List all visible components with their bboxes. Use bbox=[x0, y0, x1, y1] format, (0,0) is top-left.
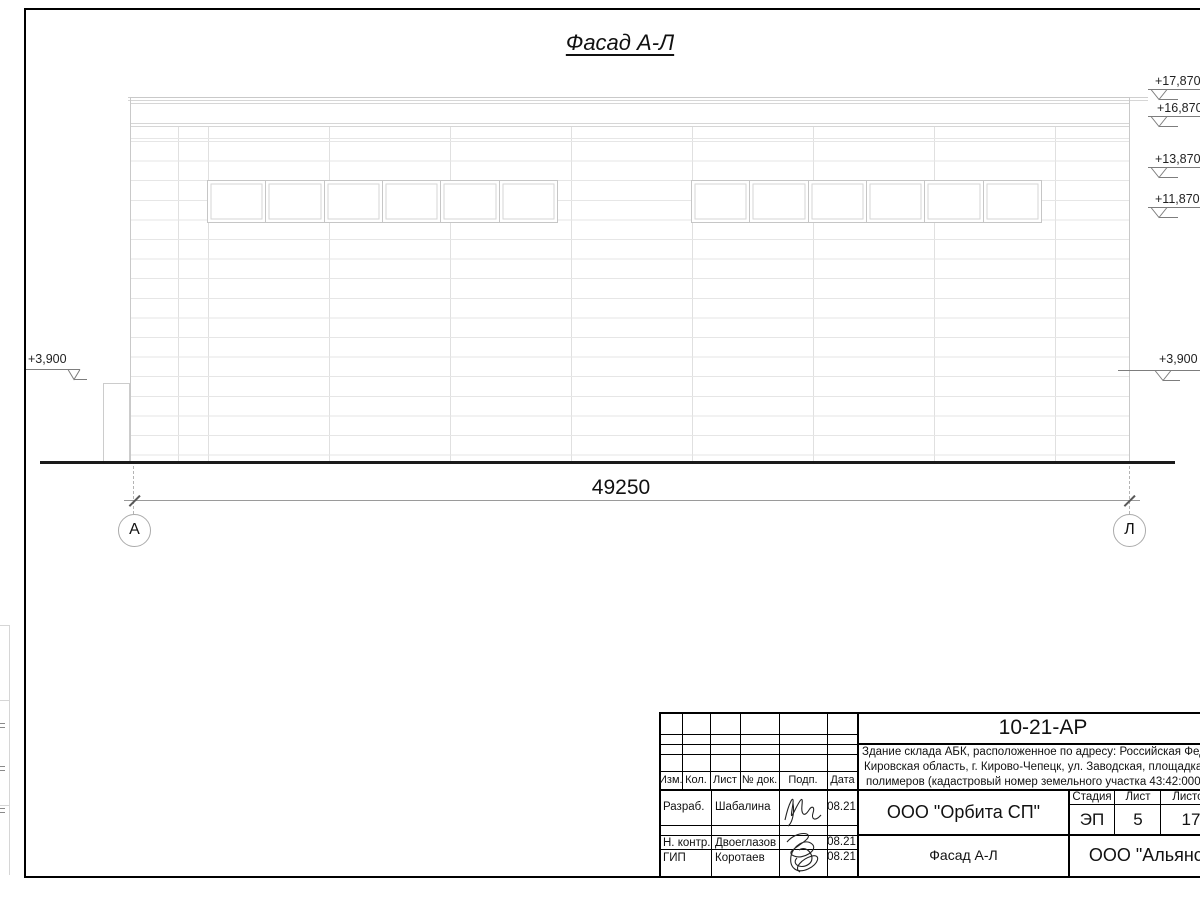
edge-table-border bbox=[9, 625, 10, 875]
elevation-value: +3,900 bbox=[28, 352, 67, 366]
elevation-arrow-icon bbox=[1148, 89, 1200, 101]
sheet-frame-left bbox=[24, 8, 26, 876]
window bbox=[984, 181, 1041, 222]
axis-bubble-l: Л bbox=[1113, 514, 1146, 547]
stamp-line bbox=[659, 771, 858, 772]
sig-name: Шабалина bbox=[715, 801, 771, 813]
project-description-line: полимеров (кадастровый номер земельного … bbox=[866, 776, 1200, 788]
col-header-data: Дата bbox=[827, 774, 858, 786]
drawing-sheet: { "sheet": { "title": "Фасад А-Л", "dime… bbox=[0, 0, 1200, 900]
stamp-line bbox=[659, 734, 858, 735]
elevation-value: +17,870 bbox=[1155, 74, 1200, 88]
sig-name: Двоеглазов bbox=[715, 837, 776, 849]
elevation-arrow-icon bbox=[1148, 167, 1200, 179]
sig-role: Разраб. bbox=[663, 801, 704, 813]
stamp-line bbox=[659, 849, 858, 850]
sheet-label: Лист bbox=[1115, 791, 1161, 803]
signature-scribble bbox=[781, 792, 826, 828]
building-outline bbox=[130, 97, 1130, 463]
stamp-line bbox=[711, 790, 712, 876]
stamp-line bbox=[858, 743, 1200, 745]
window bbox=[500, 181, 557, 222]
client-org: ООО "Орбита СП" bbox=[858, 790, 1069, 835]
axis-extension-line-a bbox=[133, 466, 134, 514]
elevation-value: +11,870 bbox=[1155, 192, 1200, 206]
col-header-podp: Подп. bbox=[779, 774, 827, 786]
edge-table-text-fragment bbox=[0, 808, 5, 813]
facade-view-title: Фасад А-Л bbox=[490, 30, 750, 56]
elevation-mark-windows-bottom: +11,870 bbox=[1155, 192, 1200, 206]
signature-scribble bbox=[779, 830, 827, 876]
edge-table-text-fragment bbox=[0, 723, 5, 728]
project-description-line: Кировская область, г. Кирово-Чепецк, ул.… bbox=[864, 761, 1200, 773]
sheets-total-label: Листов bbox=[1161, 791, 1200, 803]
axis-bubble-a: А bbox=[118, 514, 151, 547]
elevation-value: +16,870 bbox=[1157, 101, 1200, 115]
elevation-value: +13,870 bbox=[1155, 152, 1200, 166]
window bbox=[266, 181, 324, 222]
stage-value: ЭП bbox=[1069, 805, 1115, 835]
window bbox=[208, 181, 266, 222]
window bbox=[383, 181, 441, 222]
window-band-left bbox=[207, 180, 558, 223]
window bbox=[692, 181, 750, 222]
elevation-arrow-icon bbox=[26, 369, 88, 381]
window bbox=[750, 181, 808, 222]
col-header-list: Лист bbox=[710, 774, 740, 786]
stage-label: Стадия bbox=[1069, 791, 1115, 803]
sig-date: 08.21 bbox=[826, 851, 857, 863]
elevation-mark-parapet-bottom: +16,870 bbox=[1157, 101, 1200, 115]
dimension-line bbox=[124, 500, 1140, 501]
axis-extension-line-l bbox=[1129, 466, 1130, 514]
stamp-line bbox=[659, 754, 858, 755]
window bbox=[441, 181, 499, 222]
project-description-line: Здание склада АБК, расположенное по адре… bbox=[862, 746, 1200, 758]
elevation-arrow-icon bbox=[1118, 370, 1200, 382]
window bbox=[925, 181, 983, 222]
sheet-frame-top bbox=[24, 8, 1200, 10]
col-header-izm: Изм. bbox=[659, 774, 682, 786]
view-name: Фасад А-Л bbox=[858, 835, 1069, 876]
doc-number: 10-21-АР bbox=[868, 712, 1200, 743]
elevation-mark-annex-right: +3,900 bbox=[1159, 352, 1198, 366]
stamp-line bbox=[659, 825, 858, 826]
annex-outline bbox=[103, 383, 130, 462]
elevation-arrow-icon bbox=[1148, 207, 1200, 219]
sig-name: Коротаев bbox=[715, 852, 765, 864]
elevation-mark-parapet-top: +17,870 bbox=[1155, 74, 1200, 88]
window bbox=[867, 181, 925, 222]
col-header-doc-no: № док. bbox=[740, 774, 779, 786]
sig-date: 08.21 bbox=[826, 836, 857, 848]
elevation-mark-windows-top: +13,870 bbox=[1155, 152, 1200, 166]
dimension-value: 49250 bbox=[486, 476, 756, 500]
sheet-frame-bottom bbox=[24, 876, 1200, 878]
sig-role: Н. контр. bbox=[663, 837, 710, 849]
sheets-total-value: 17 bbox=[1161, 805, 1200, 835]
design-org: ООО "Альянс" bbox=[1069, 835, 1200, 876]
window bbox=[809, 181, 867, 222]
stamp-line bbox=[659, 712, 661, 878]
sig-role: ГИП bbox=[663, 852, 686, 864]
elevation-arrow-icon bbox=[1148, 116, 1200, 128]
sig-date: 08.21 bbox=[826, 801, 857, 813]
sheet-value: 5 bbox=[1115, 805, 1161, 835]
stamp-line bbox=[659, 744, 858, 745]
window bbox=[325, 181, 383, 222]
elevation-mark-annex-left: +3,900 bbox=[28, 352, 67, 366]
ground-line bbox=[40, 461, 1175, 464]
window-band-right bbox=[691, 180, 1042, 223]
elevation-value: +3,900 bbox=[1159, 352, 1198, 366]
edge-table-text-fragment bbox=[0, 766, 5, 771]
col-header-kol: Кол. bbox=[682, 774, 710, 786]
